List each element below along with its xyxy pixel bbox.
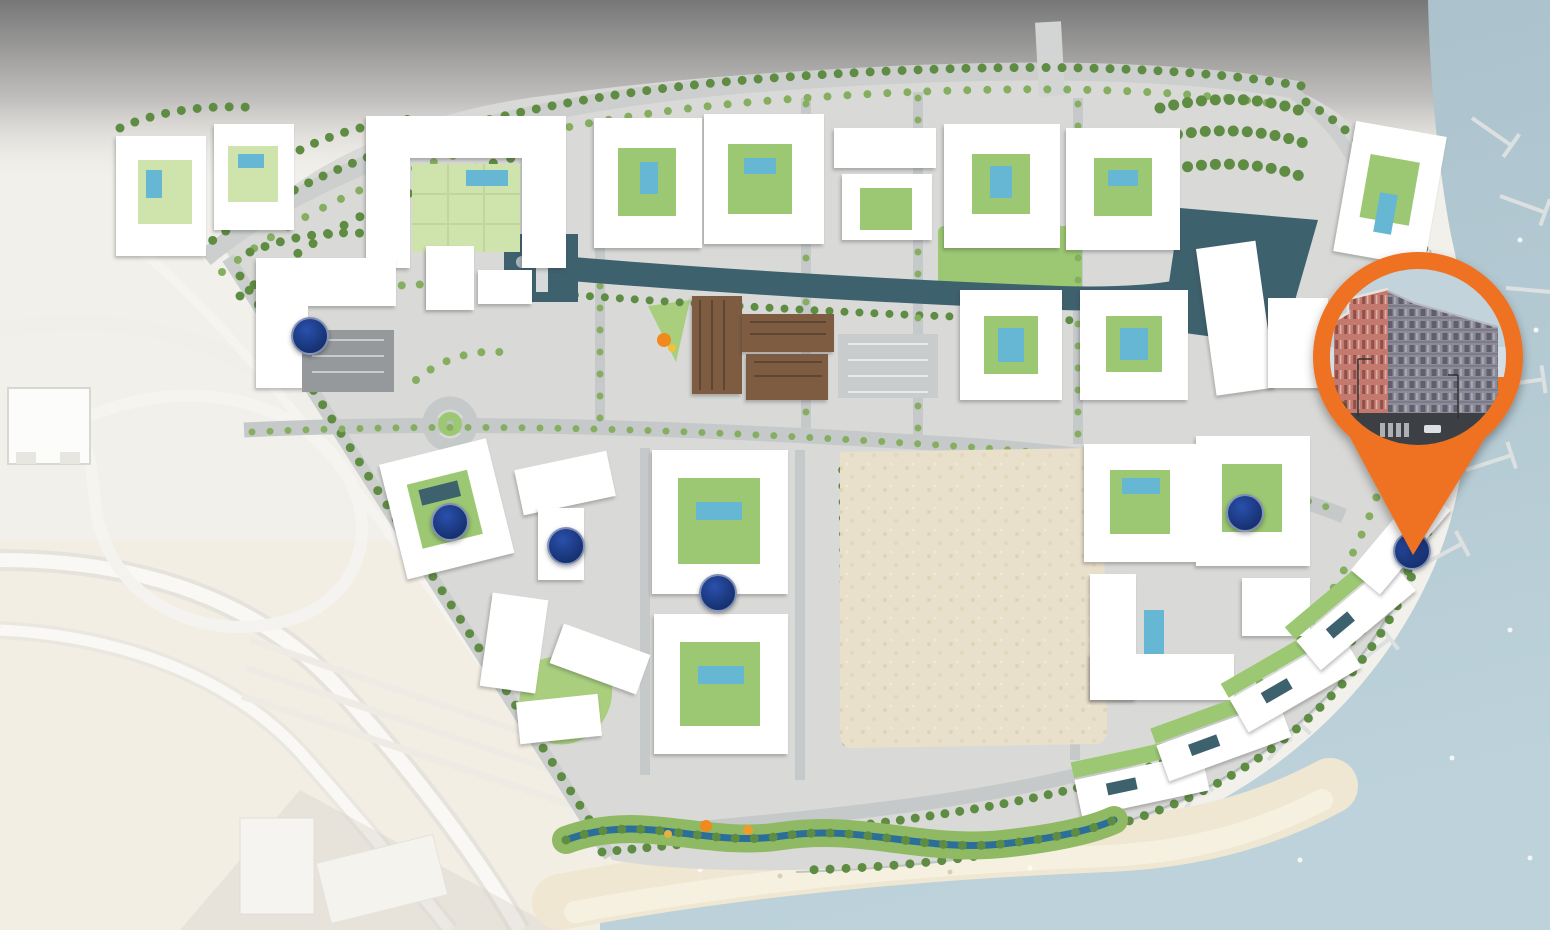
playground-tent — [657, 333, 671, 347]
building-location-marker[interactable] — [547, 527, 585, 565]
building-location-marker[interactable] — [431, 503, 469, 541]
building-location-marker[interactable] — [699, 574, 737, 612]
vacant-lot — [840, 448, 1107, 748]
building-location-marker[interactable] — [291, 317, 329, 355]
building-location-marker[interactable] — [1226, 494, 1264, 532]
playground — [700, 820, 712, 832]
pin-graphic — [1298, 247, 1538, 567]
car — [1424, 425, 1441, 433]
warehouse-building-faded — [8, 388, 90, 464]
master-plan-map — [0, 0, 1550, 930]
selected-building-pin[interactable] — [1298, 247, 1538, 567]
